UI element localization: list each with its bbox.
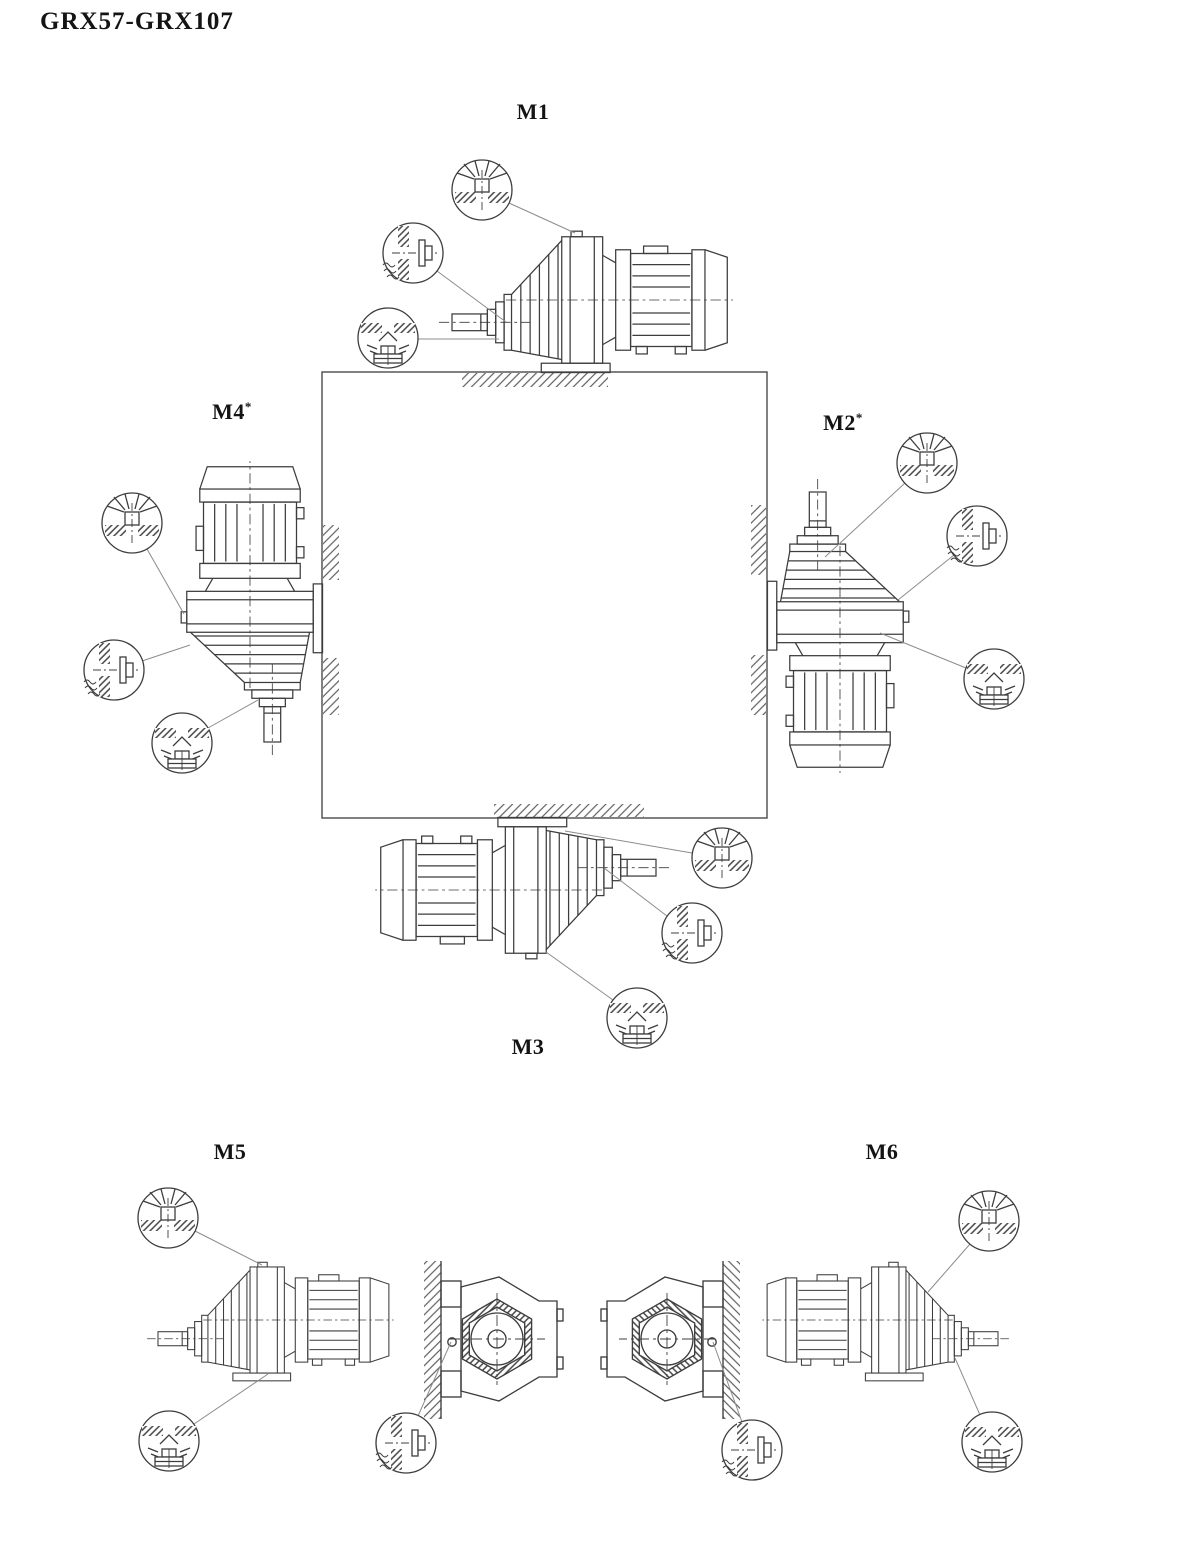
mounting-surface-square bbox=[322, 372, 767, 818]
m4-gearmotor-side-view bbox=[181, 461, 322, 755]
catalog-page: GRX57-GRX107 M1 M2* M3 M4* M5 M6 bbox=[0, 0, 1203, 1549]
m5-gearmotor-side-view bbox=[147, 1262, 393, 1381]
leader-line bbox=[142, 645, 190, 661]
m3-gearmotor-side-view bbox=[375, 817, 669, 958]
oil-level-plug-icon bbox=[84, 640, 144, 700]
leader-line bbox=[195, 1231, 262, 1265]
left-wall-hatch bbox=[323, 525, 339, 580]
m1-gearmotor-side-view bbox=[439, 231, 733, 372]
leader-line bbox=[898, 555, 954, 600]
leader-line bbox=[604, 868, 667, 916]
leader-line bbox=[208, 700, 258, 728]
breather-plug-icon bbox=[102, 493, 162, 553]
oil-level-plug-icon bbox=[947, 506, 1007, 566]
breather-plug-icon bbox=[452, 160, 512, 220]
oil-drain-plug-icon bbox=[964, 649, 1024, 709]
breather-plug-icon bbox=[692, 828, 752, 888]
leader-line bbox=[825, 483, 905, 557]
breather-plug-icon bbox=[897, 433, 957, 493]
m2-gearmotor-side-view bbox=[767, 479, 908, 773]
oil-level-plug-icon bbox=[662, 903, 722, 963]
m6-gearmotor-side-view bbox=[762, 1262, 1008, 1381]
oil-drain-plug-icon bbox=[607, 988, 667, 1048]
leader-line bbox=[147, 549, 184, 614]
oil-level-plug-icon bbox=[722, 1420, 782, 1480]
leader-line bbox=[509, 203, 575, 233]
leader-line bbox=[565, 831, 692, 853]
oil-drain-plug-icon bbox=[152, 713, 212, 773]
oil-drain-plug-icon bbox=[962, 1412, 1022, 1472]
mounting-positions-diagram bbox=[0, 0, 1203, 1549]
ceiling-hatch bbox=[494, 804, 644, 817]
left-wall-hatch bbox=[323, 658, 339, 715]
oil-drain-plug-icon bbox=[139, 1411, 199, 1471]
m6-gearmotor-end-view bbox=[601, 1261, 740, 1419]
m5-gearmotor-end-view bbox=[424, 1261, 563, 1419]
right-wall-hatch bbox=[751, 655, 766, 715]
leader-line bbox=[546, 952, 613, 1000]
oil-level-plug-icon bbox=[383, 223, 443, 283]
leader-line bbox=[955, 1358, 980, 1415]
leader-line bbox=[194, 1374, 268, 1424]
leader-line bbox=[880, 633, 966, 668]
oil-drain-plug-icon bbox=[358, 308, 418, 368]
breather-plug-icon bbox=[959, 1191, 1019, 1251]
oil-level-plug-icon bbox=[376, 1413, 436, 1473]
right-wall-hatch bbox=[751, 505, 766, 575]
leader-line bbox=[928, 1244, 970, 1292]
breather-plug-icon bbox=[138, 1188, 198, 1248]
floor-hatch bbox=[462, 373, 608, 387]
